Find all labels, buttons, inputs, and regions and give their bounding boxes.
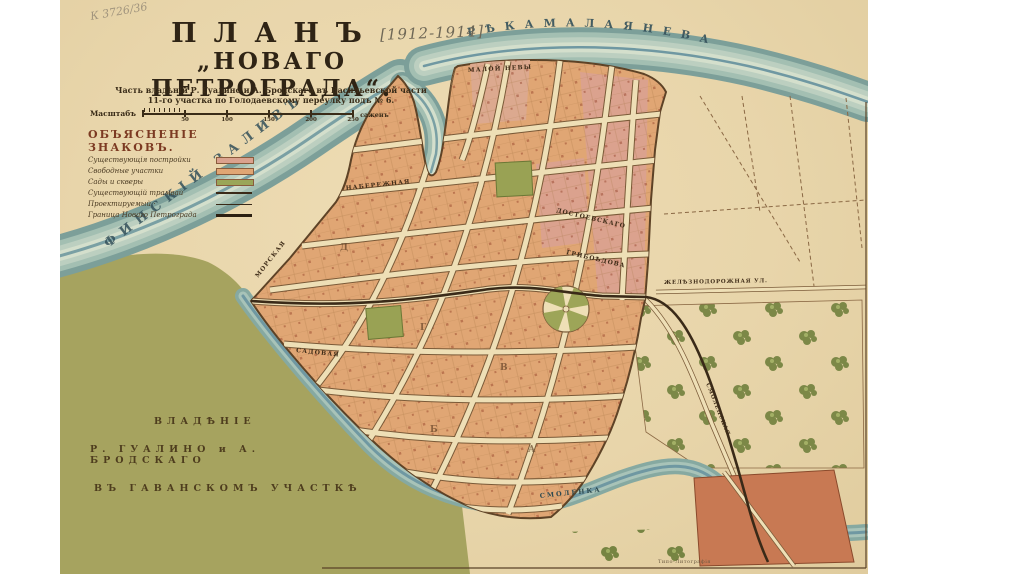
redbrick-block (694, 470, 854, 566)
projected-streets (664, 96, 866, 286)
legend-item: Проектируемый · (88, 200, 278, 210)
ownership-line1: ВЛАДѢНІЕ (154, 416, 370, 427)
ownership-caption: ВЛАДѢНІЕ Р. ГУАЛИНО и А. БРОДСКАГО ВЪ ГА… (90, 416, 370, 494)
map-sheet: ФИНСКІЙ ЗАЛИВЪ Р Ѣ К А М А Л А Я Н Е В А… (60, 0, 868, 574)
map-title-line1: ПЛАНЪ (155, 18, 395, 49)
legend-item-label: Свободные участки (88, 167, 216, 175)
street-label: ЖЕЛѢЗНОДОРОЖНАЯ УЛ. (664, 278, 768, 286)
legend-line-projected (216, 204, 252, 205)
legend-item-label: Проектируемый · (88, 200, 216, 208)
svg-text:Д: Д (340, 243, 348, 253)
legend-item: Свободные участки (88, 167, 278, 177)
scale-tick: 250 (344, 117, 362, 123)
legend-line-boundary (216, 214, 252, 217)
svg-text:Г: Г (420, 323, 427, 333)
scale-bar: Масштабъ 50 100 150 200 250 саженъ (90, 107, 389, 125)
svg-text:Б: Б (430, 425, 438, 435)
legend-swatch-built (216, 157, 254, 165)
scale-units: саженъ (360, 107, 389, 119)
screenshot: ФИНСКІЙ ЗАЛИВЪ Р Ѣ К А М А Л А Я Н Е В А… (0, 0, 1024, 574)
svg-text:В: В (500, 363, 508, 373)
legend-item: Существующія постройки (88, 156, 278, 166)
legend-item: Существующій трамвай (88, 189, 278, 199)
map-subtitle-line1: Часть владѣній Р. Гуалино и А. Бродскаго… (78, 85, 464, 95)
scale-label: Масштабъ (90, 107, 136, 118)
scale-tick: 200 (302, 117, 320, 123)
ownership-line3: ВЪ ГАВАНСКОМЪ УЧАСТКѢ (94, 483, 370, 494)
scale-tick: 150 (260, 117, 278, 123)
printer-imprint: Типо-Литографія (658, 559, 711, 565)
legend-item: Граница Новаго Петрограда (88, 211, 278, 221)
legend-item: Сады и скверы (88, 178, 278, 188)
scale-tick: 100 (218, 117, 236, 123)
title-date-annotation: [1912-1914] (380, 22, 485, 44)
legend-line-tram (216, 192, 252, 194)
svg-text:А: А (528, 445, 536, 455)
legend-swatch-free (216, 168, 254, 176)
legend-swatch-gardens (216, 179, 254, 187)
legend: ОБЪЯСНЕНІЕ ЗНАКОВЪ. Существующія построй… (88, 128, 278, 220)
legend-item-label: Сады и скверы (88, 178, 216, 186)
map-subtitle-line2: 11-го участка по Голодаевскому переулку … (78, 95, 464, 105)
legend-item-label: Граница Новаго Петрограда (88, 211, 216, 219)
scale-tick: 50 (176, 117, 194, 123)
scale-ruler: 50 100 150 200 250 (142, 107, 354, 125)
ownership-line2: Р. ГУАЛИНО и А. БРОДСКАГО (90, 444, 370, 466)
legend-item-label: Существующій трамвай (88, 189, 216, 197)
legend-title: ОБЪЯСНЕНІЕ ЗНАКОВЪ. (88, 128, 278, 154)
legend-item-label: Существующія постройки (88, 156, 216, 164)
